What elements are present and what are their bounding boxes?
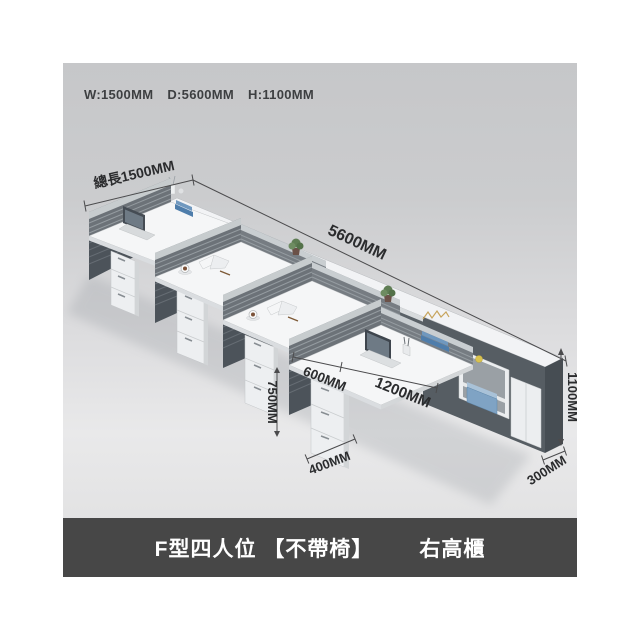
dimension-cabinet-depth: 300MM xyxy=(524,447,569,489)
dimension-cabinet-height: 1100MM xyxy=(558,348,577,446)
cabinet-doors xyxy=(511,377,541,448)
cabinet-end-panel xyxy=(545,358,563,453)
furniture-illustration: 總長1500MM 5600MM 750MM 600MM 1200MM xyxy=(63,63,577,577)
product-option-title: 右高櫃 xyxy=(419,533,485,563)
title-banner: F型四人位 【不帶椅】 右高櫃 xyxy=(63,518,577,577)
product-model-title: F型四人位 【不帶椅】 xyxy=(155,533,374,563)
drawer-pedestal xyxy=(111,251,139,317)
product-photo: W:1500MM D:5600MM H:1100MM xyxy=(63,63,577,577)
cabinet-height-label: 1100MM xyxy=(565,372,577,422)
product-listing-image: W:1500MM D:5600MM H:1100MM xyxy=(0,0,640,640)
yellow-cup xyxy=(476,356,483,363)
run-depth-label: 5600MM xyxy=(325,222,389,264)
cabinet-depth-label: 300MM xyxy=(524,452,569,488)
desk-height-label: 750MM xyxy=(265,380,280,423)
